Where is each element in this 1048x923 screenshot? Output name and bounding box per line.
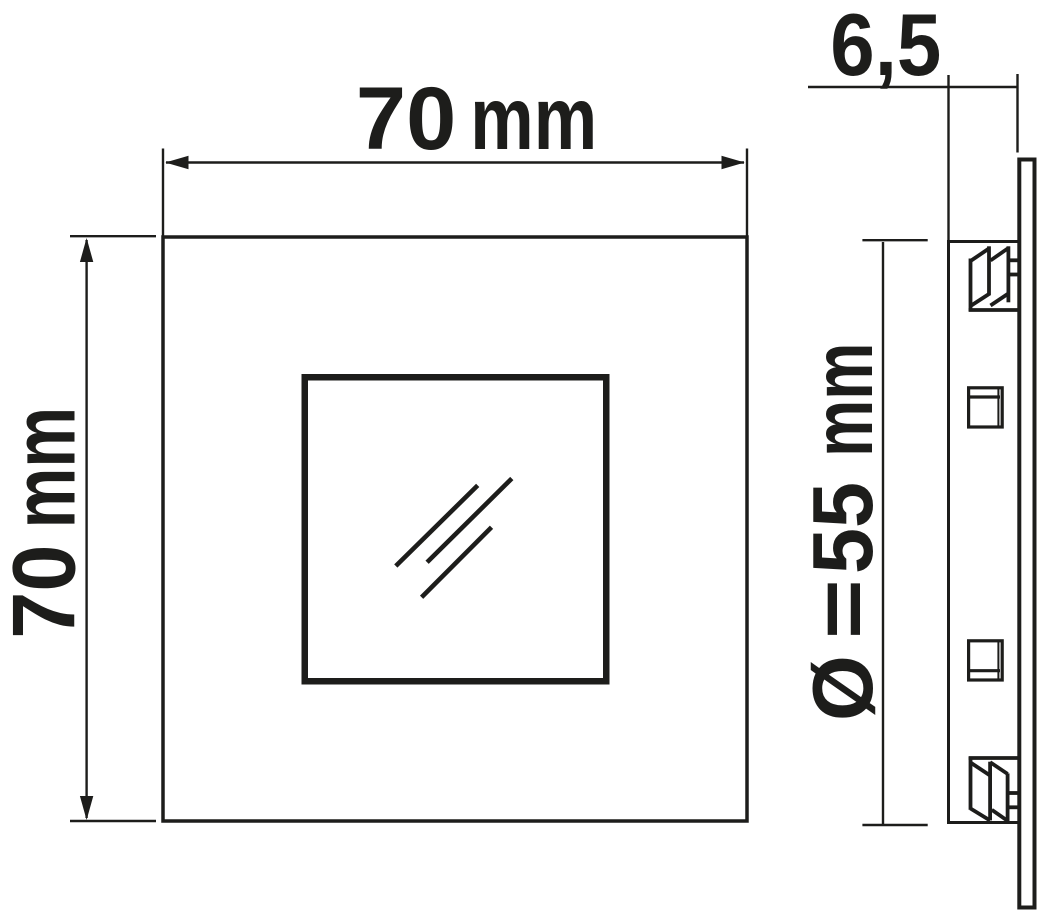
svg-text:6,5: 6,5 (830, 0, 941, 94)
svg-text:mm: mm (470, 68, 597, 168)
svg-text:70: 70 (0, 545, 94, 639)
svg-text:mm: mm (0, 407, 94, 529)
svg-text:Ø: Ø (796, 655, 891, 721)
svg-text:70: 70 (356, 68, 456, 168)
svg-text:mm: mm (796, 343, 891, 457)
svg-text:55: 55 (796, 482, 891, 574)
svg-text:=: = (796, 579, 891, 639)
